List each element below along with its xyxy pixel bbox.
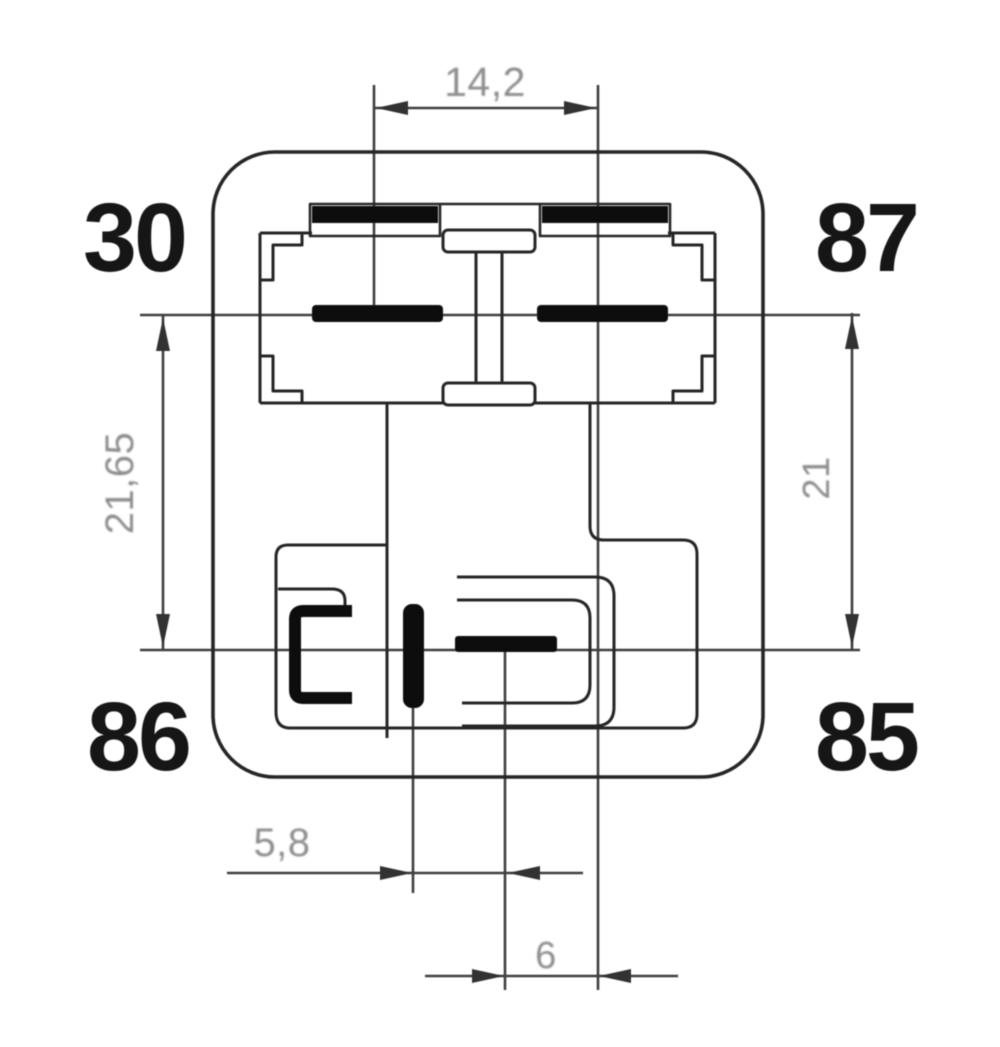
ibeam-bottom-flange xyxy=(443,383,535,405)
pin-label-87: 87 xyxy=(815,183,917,292)
arrow-58-right xyxy=(508,866,540,880)
coil-bracket-thick xyxy=(295,611,352,698)
relay-footprint-drawing: 30 87 86 85 14,2 21,65 21 5,8 6 xyxy=(0,0,1000,1047)
dim-text-bottom-center: 6 xyxy=(535,935,557,977)
arrow-6-right xyxy=(599,969,631,983)
arrow-right-up xyxy=(845,316,859,349)
center-ibeam-key xyxy=(443,230,535,405)
slot-30-thick-wall xyxy=(312,206,438,223)
arrow-58-left xyxy=(380,866,412,880)
dimension-texts: 14,2 21,65 21 5,8 6 xyxy=(98,59,838,977)
arrow-left-up xyxy=(156,318,170,351)
slot-87-thick-wall xyxy=(542,206,668,223)
terminal-85-blade xyxy=(455,636,557,652)
arrow-top-left xyxy=(376,101,408,115)
pin-label-30: 30 xyxy=(83,183,185,292)
dim-text-top-width: 14,2 xyxy=(444,59,526,105)
relay-pinout-diagram: 30 87 86 85 14,2 21,65 21 5,8 6 xyxy=(0,0,1000,1047)
dim-text-right-height: 21 xyxy=(796,456,838,499)
terminal-30-blade xyxy=(312,305,443,322)
arrow-6-left xyxy=(472,969,504,983)
corner-step-bottom-right xyxy=(673,356,715,403)
pin-label-85: 85 xyxy=(815,682,918,791)
arrow-top-right xyxy=(564,101,596,115)
arrow-right-down xyxy=(845,614,859,647)
pin-label-86: 86 xyxy=(87,682,189,791)
corner-step-bottom-left xyxy=(260,356,302,403)
corner-step-top-left xyxy=(260,233,302,280)
dimension-lines xyxy=(140,85,860,990)
terminal-86-blade xyxy=(403,604,424,708)
lower-cavity xyxy=(276,403,697,738)
corner-step-top-right xyxy=(673,233,715,280)
ibeam-top-flange xyxy=(443,230,535,252)
dim-text-bottom-left: 5,8 xyxy=(253,821,310,865)
relay-body xyxy=(213,152,763,777)
arrow-left-down xyxy=(156,614,170,647)
lower-channel-contour xyxy=(276,403,697,728)
dim-text-left-height: 21,65 xyxy=(98,432,142,535)
terminal-87-blade xyxy=(537,305,668,322)
